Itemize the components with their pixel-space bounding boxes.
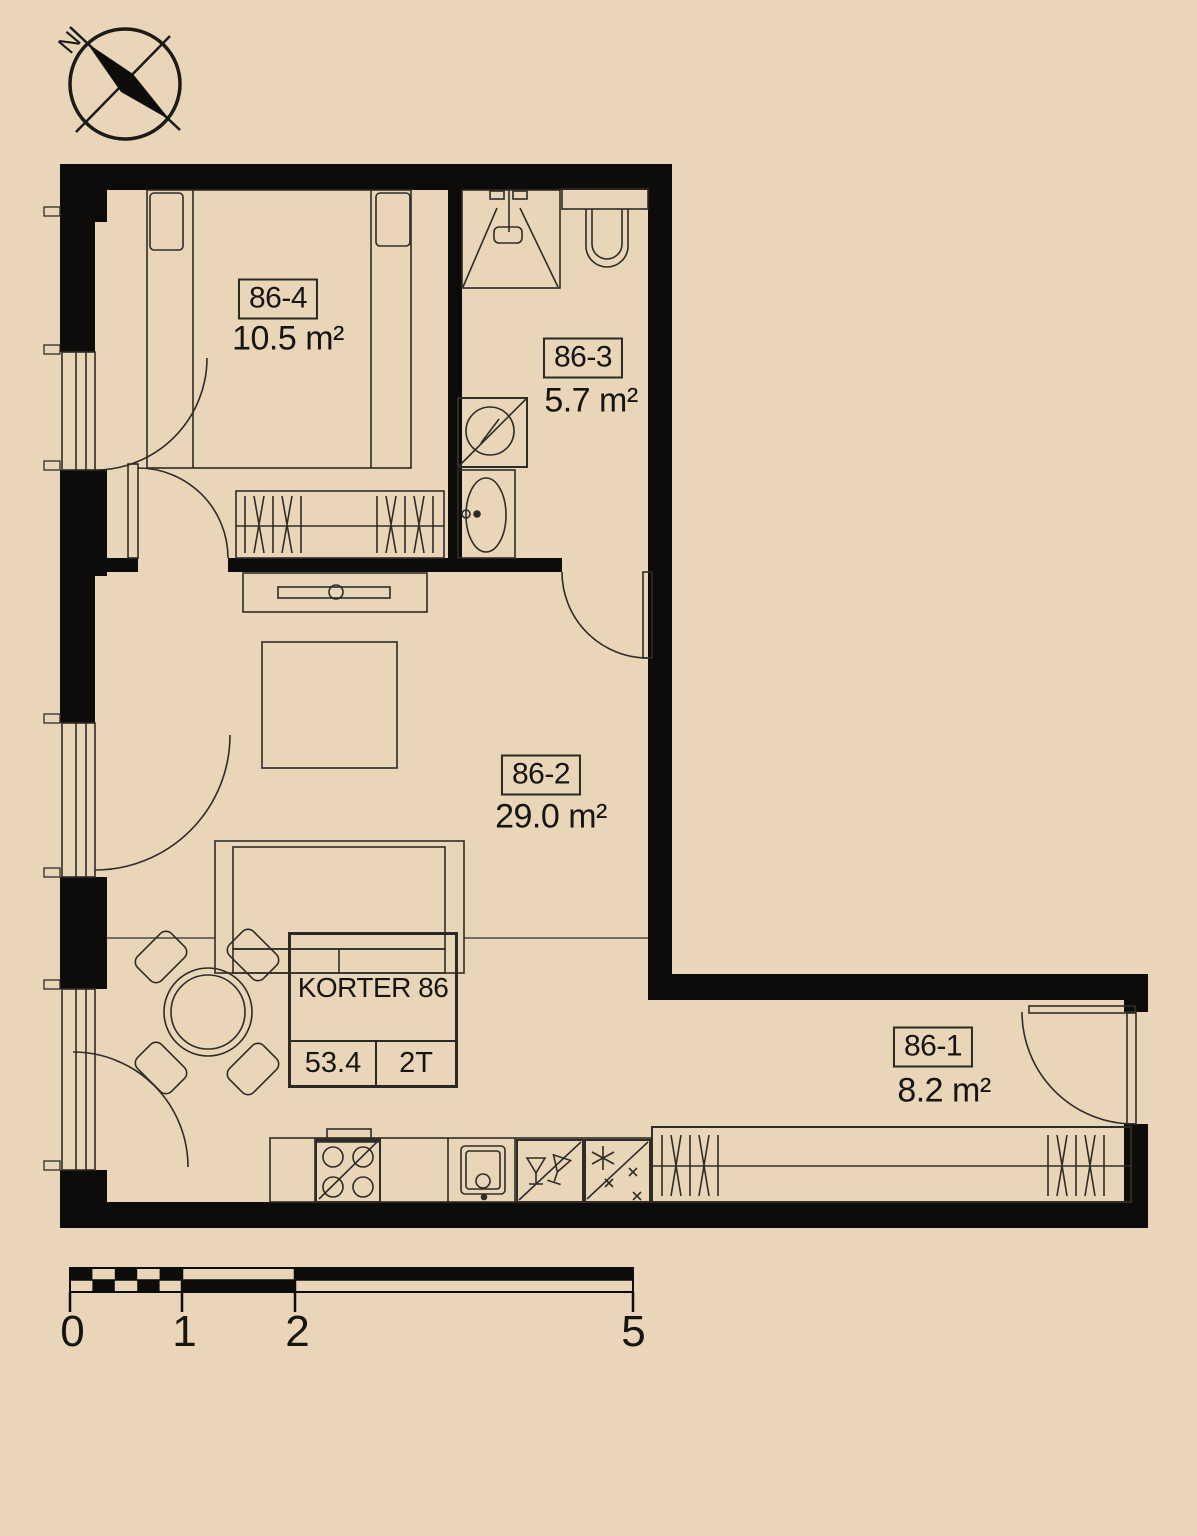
- wall-bottom: [60, 1202, 1148, 1228]
- walls: [60, 164, 1148, 1228]
- room-area-86-2: 29.0 m²: [495, 798, 607, 837]
- wall-divider-b: [228, 558, 562, 572]
- scale-segment-1-2: [182, 1280, 295, 1292]
- washing-machine-bolt: [481, 419, 499, 443]
- room-label-86-4: 86-4: [238, 279, 318, 320]
- window-living-lower-panes: [76, 989, 86, 1170]
- wall-left-1a: [60, 164, 107, 222]
- room-label-86-3: 86-3: [543, 338, 623, 379]
- bathroom-sink-faucet: [474, 511, 480, 517]
- dining-table-inner: [171, 975, 245, 1049]
- coffee-table: [262, 642, 397, 768]
- window-bedroom-panes: [76, 352, 86, 470]
- tv-screen: [278, 587, 390, 598]
- window-bedroom-swing-arc: [95, 358, 207, 470]
- scale-bar: [70, 1268, 633, 1312]
- scale-cell: [160, 1268, 182, 1280]
- hall-wardrobe: [652, 1127, 1131, 1202]
- bedroom-door-arc: [138, 468, 228, 558]
- room-label-86-1: 86-1: [893, 1027, 973, 1068]
- shower-head: [494, 227, 522, 243]
- kitchen-sink-faucet: [482, 1195, 487, 1200]
- wall-left-1b: [60, 222, 95, 352]
- wall-left-5: [60, 1170, 107, 1228]
- window-sill-ticks: [44, 207, 60, 1170]
- dining-table: [164, 968, 252, 1056]
- stove-burner-4: [353, 1177, 373, 1197]
- window-bedroom: [62, 352, 95, 470]
- stove-burner-3: [323, 1177, 343, 1197]
- window-living-upper-panes: [76, 723, 86, 877]
- window-living-swing-arc: [95, 735, 230, 870]
- floor-plan-drawing: N: [0, 0, 1197, 1536]
- apartment-unit-type: 2T: [377, 1042, 455, 1085]
- scale-label-1: 1: [172, 1307, 195, 1357]
- toilet-bowl-inner: [592, 209, 622, 259]
- pillow-left: [150, 193, 183, 250]
- kitchen-sink-drain: [476, 1174, 490, 1188]
- dishwasher-glass-2: [545, 1155, 570, 1185]
- balcony-door-swing-arc: [73, 1052, 188, 1167]
- stove-diagonal: [319, 1142, 377, 1199]
- apartment-total-area: 53.4: [291, 1042, 377, 1085]
- scale-label-5: 5: [621, 1307, 644, 1357]
- bedroom-wardrobe-hangers-left: [245, 496, 301, 553]
- wall-corridor-top: [648, 974, 1148, 1000]
- bedroom-door-leaf: [128, 464, 138, 558]
- dishwasher-glass-1: [527, 1158, 545, 1184]
- wall-divider-a: [94, 558, 138, 572]
- room-area-86-3: 5.7 m²: [544, 382, 637, 421]
- pillow-right: [376, 193, 410, 246]
- wall-top: [60, 164, 672, 190]
- room-area-86-1: 8.2 m²: [897, 1072, 990, 1111]
- wall-left-3: [60, 576, 95, 723]
- kitchen-counter-dividers: [315, 1138, 515, 1202]
- bathroom-sink-basin: [466, 478, 506, 552]
- shower-funnel: [463, 208, 558, 287]
- compass-north-label: N: [52, 25, 87, 59]
- floor-plan-canvas: N 86-4 10.5 m² 86-3 5.7 m² 86-2 29.0 m² …: [0, 0, 1197, 1536]
- shower: [462, 190, 560, 288]
- scale-cell: [70, 1268, 92, 1280]
- bathroom-door-arc: [562, 572, 648, 658]
- scale-cell: [115, 1268, 137, 1280]
- kitchen-sink-inner: [466, 1151, 500, 1189]
- apartment-info-row: 53.4 2T: [291, 1040, 455, 1085]
- hall-wardrobe-body: [652, 1127, 1131, 1202]
- dishwasher-diagonal: [519, 1142, 581, 1200]
- apartment-info-box: KORTER 86 53.4 2T: [288, 932, 458, 1088]
- window-living-upper: [62, 723, 95, 877]
- scale-cell: [92, 1280, 114, 1292]
- bedroom-wardrobe-hangers-right: [377, 496, 433, 553]
- scale-cell: [137, 1280, 159, 1292]
- freezer-diagonal: [587, 1142, 648, 1199]
- stove-burner-1: [323, 1147, 343, 1167]
- scale-segment-2-5: [295, 1268, 633, 1280]
- entry-door-arc: [1022, 1012, 1134, 1124]
- window-living-lower: [62, 989, 95, 1170]
- washing-machine-diagonal: [459, 399, 526, 466]
- bedroom-furniture: [147, 190, 444, 558]
- kitchen: [270, 1129, 652, 1202]
- wall-bed-bath: [448, 190, 462, 572]
- tv-stand: [243, 573, 427, 612]
- apartment-title: KORTER 86: [291, 935, 455, 1040]
- freezer-snowflake: [592, 1146, 614, 1170]
- scale-label-0: 0: [60, 1307, 83, 1357]
- entry-door-lintel: [1029, 1006, 1135, 1013]
- entry-door-leaf: [1127, 1012, 1136, 1124]
- toilet-tank: [562, 189, 648, 209]
- scale-label-2: 2: [285, 1307, 308, 1357]
- wall-left-4: [60, 877, 107, 989]
- room-area-86-4: 10.5 m²: [232, 320, 344, 359]
- room-label-86-2: 86-2: [501, 755, 581, 796]
- kitchen-sink: [461, 1146, 505, 1194]
- bedroom-wardrobe: [236, 491, 444, 558]
- freezer-x-marks: [605, 1168, 641, 1200]
- shower-mixer-right: [513, 191, 527, 199]
- compass: N: [52, 25, 180, 139]
- shower-mixer-left: [490, 191, 504, 199]
